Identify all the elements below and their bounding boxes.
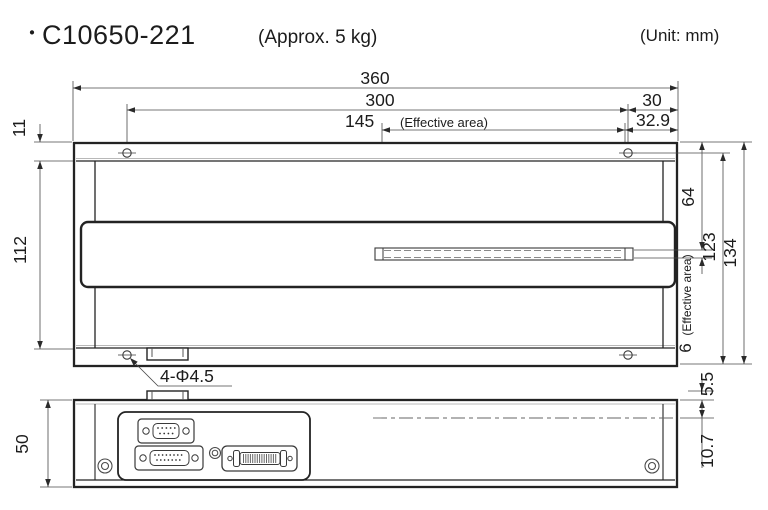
title-bullet: ・: [22, 23, 42, 45]
cl-screw-left: [228, 456, 232, 460]
mid-screw: [210, 448, 221, 459]
dim-overall-height: 134: [720, 238, 740, 267]
dim-hole-to-edge: 30: [642, 90, 662, 110]
dim-effective-height-note: (Effective area): [680, 254, 694, 335]
effective-area-slot: [375, 248, 633, 260]
dsub15-shell: [150, 451, 189, 466]
dsub15-screw-right: [192, 455, 198, 461]
front-bottom-tab: [147, 348, 188, 360]
model-number: C10650-221: [42, 20, 196, 50]
dsub9-connector: [138, 419, 194, 443]
dim-mount-holes: 4-Φ4.5: [160, 366, 214, 386]
weight-note: (Approx. 5 kg): [258, 27, 377, 48]
dim-top-to-effective: 64: [678, 187, 698, 207]
side-view: 50: [12, 391, 677, 487]
cl-latch-left: [234, 451, 240, 467]
dim-overall-width: 360: [360, 68, 389, 88]
drawing-title: ・ C10650-221 (Approx. 5 kg): [22, 20, 377, 50]
screw-left-inner: [102, 463, 109, 470]
unit-note: (Unit: mm): [640, 26, 719, 45]
dsub15-screw-left: [140, 455, 146, 461]
dimensions-top: 360 300 30 145 (Effective area) 32.9: [73, 68, 678, 141]
mid-screw-inner: [212, 450, 218, 456]
tab-outline: [147, 348, 188, 360]
slot-outline: [375, 248, 633, 260]
camera-link-connector: [222, 446, 297, 471]
cl-latch-right: [281, 451, 287, 467]
dim-body-height: 112: [10, 236, 30, 264]
dsub9-screw-left: [143, 428, 149, 434]
dim-effective-to-edge: 32.9: [636, 110, 670, 130]
dim-top-flange-height: 11: [9, 119, 29, 137]
tab-outline: [147, 391, 188, 400]
dim-effective-height: 6: [676, 343, 695, 352]
dim-effective-width: 145: [345, 111, 374, 131]
dim-flange-to-bottom: 123: [699, 232, 719, 261]
dim-effective-width-note: (Effective area): [400, 115, 488, 130]
dim-tab-protrusion: 5.5: [697, 372, 717, 396]
drawing-page: { "title": { "bullet": "・", "model": "C1…: [0, 0, 768, 510]
dim-mount-hole-span: 300: [365, 90, 394, 110]
dim-side-height: 50: [12, 434, 32, 454]
side-top-tab: [147, 391, 188, 400]
dsub9-shell: [153, 424, 179, 439]
cl-screw-right: [288, 456, 292, 460]
dsub9-screw-right: [183, 428, 189, 434]
dim-axis-offset: 10.7: [697, 434, 717, 468]
front-view: [74, 104, 677, 366]
dimensions-left: 11 112: [9, 119, 73, 349]
screw-right-inner: [649, 463, 656, 470]
dsub15-connector: [135, 446, 203, 470]
